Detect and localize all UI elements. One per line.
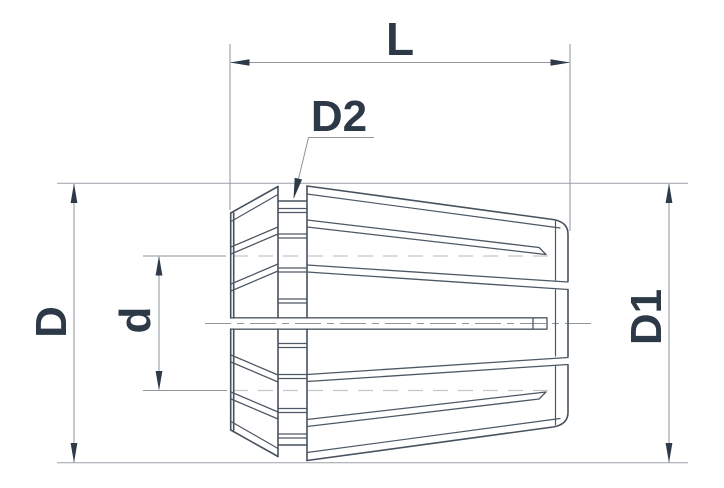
dimension-L-extension-lines [230, 44, 570, 231]
collet-drawing: D d D1 L D2 [0, 0, 724, 488]
callout-D2-leader-line [294, 138, 374, 198]
arrow-down-icon [156, 371, 163, 391]
label-d: d [111, 307, 160, 334]
arrow-down-icon [666, 443, 673, 463]
arrow-left-icon [230, 59, 250, 66]
label-D1: D1 [622, 289, 671, 345]
label-L: L [386, 13, 414, 65]
arrow-up-icon [156, 256, 163, 276]
label-D2: D2 [311, 92, 367, 141]
arrow-up-icon [71, 183, 78, 203]
arrow-leader-icon [294, 178, 303, 199]
dimension-D: D [27, 183, 77, 462]
label-D: D [27, 306, 76, 338]
arrow-up-icon [666, 183, 673, 203]
dimension-D1: D1 [622, 183, 672, 462]
arrow-down-icon [71, 443, 78, 463]
collet-nose-chamfer-lines [231, 195, 278, 449]
technical-drawing-canvas: D d D1 L D2 [0, 0, 724, 488]
arrow-right-icon [551, 59, 571, 66]
